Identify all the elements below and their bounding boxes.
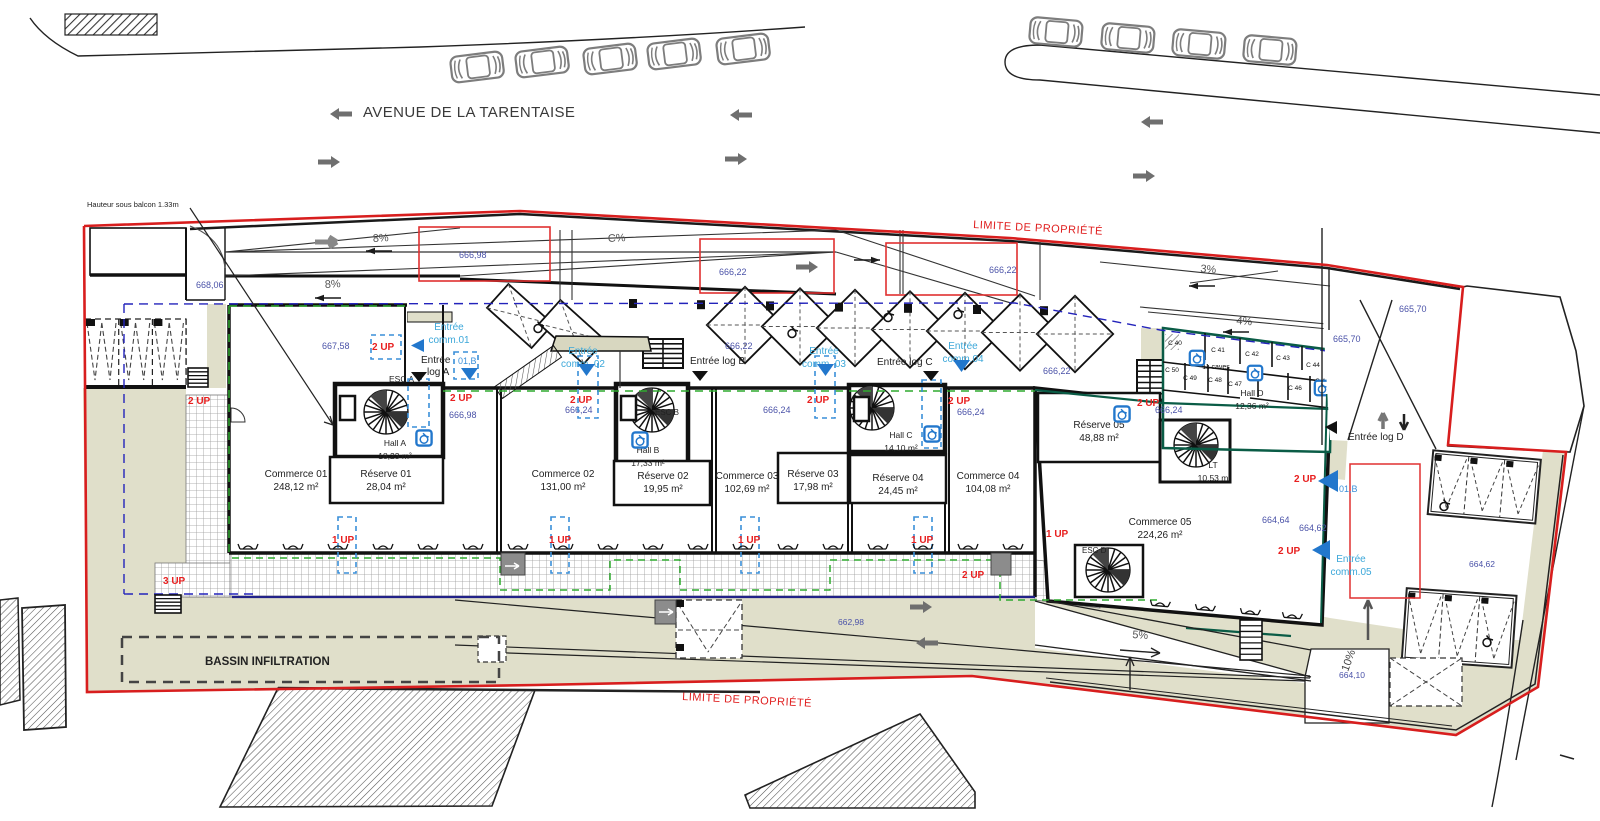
svg-text:Réserve 01: Réserve 01 — [360, 469, 412, 480]
svg-text:664,64: 664,64 — [1262, 515, 1290, 525]
svg-text:Entrée: Entrée — [809, 346, 839, 357]
svg-text:1 UP: 1 UP — [911, 535, 934, 546]
svg-text:5%: 5% — [1132, 629, 1149, 642]
svg-text:C 49: C 49 — [1183, 375, 1197, 382]
svg-text:18,23 m²: 18,23 m² — [378, 451, 412, 461]
svg-text:AVENUE DE LA TARENTAISE: AVENUE DE LA TARENTAISE — [363, 104, 575, 121]
svg-text:248,12 m²: 248,12 m² — [273, 482, 319, 493]
svg-text:C 46: C 46 — [1288, 385, 1302, 392]
svg-text:666,22: 666,22 — [719, 267, 747, 277]
svg-text:C 50: C 50 — [1165, 367, 1179, 374]
svg-text:10,53 m: 10,53 m — [1198, 473, 1229, 483]
svg-text:666,22: 666,22 — [1043, 366, 1071, 376]
svg-text:Entrée log B: Entrée log B — [690, 356, 745, 367]
svg-text:C 41: C 41 — [1211, 347, 1225, 354]
svg-text:BASSIN INFILTRATION: BASSIN INFILTRATION — [205, 656, 330, 668]
svg-text:Entrée: Entrée — [568, 346, 598, 357]
svg-text:C 47: C 47 — [1228, 381, 1242, 388]
svg-text:667,58: 667,58 — [322, 341, 350, 351]
svg-text:comm.05: comm.05 — [1330, 567, 1372, 578]
svg-text:Hall D: Hall D — [1240, 388, 1263, 398]
svg-text:1 UP: 1 UP — [1046, 529, 1069, 540]
svg-text:48,88 m²: 48,88 m² — [1079, 433, 1119, 444]
svg-text:17,33 m²: 17,33 m² — [631, 458, 665, 468]
svg-text:14,10 m²: 14,10 m² — [884, 443, 918, 453]
svg-text:Entrée: Entrée — [421, 355, 451, 366]
svg-text:C 42: C 42 — [1245, 351, 1259, 358]
svg-text:17,98 m²: 17,98 m² — [793, 482, 833, 493]
svg-text:8%: 8% — [372, 232, 389, 245]
svg-text:Réserve 03: Réserve 03 — [787, 469, 839, 480]
svg-text:Entrée: Entrée — [434, 322, 464, 333]
svg-text:log A: log A — [427, 367, 450, 378]
svg-text:Commerce 04: Commerce 04 — [957, 471, 1020, 482]
svg-text:668,06: 668,06 — [196, 280, 224, 290]
svg-text:C 43: C 43 — [1276, 355, 1290, 362]
svg-text:Entrée: Entrée — [1336, 554, 1366, 565]
svg-text:Commerce 02: Commerce 02 — [532, 469, 595, 480]
svg-text:664,62: 664,62 — [1469, 559, 1495, 569]
svg-text:1 UP: 1 UP — [738, 535, 761, 546]
svg-text:C%: C% — [607, 232, 626, 245]
svg-text:2 UP: 2 UP — [1137, 398, 1160, 409]
svg-text:28,04 m²: 28,04 m² — [366, 482, 406, 493]
svg-text:Réserve 04: Réserve 04 — [872, 473, 924, 484]
svg-text:C 44: C 44 — [1306, 362, 1320, 369]
svg-text:Hall A: Hall A — [384, 438, 407, 448]
svg-text:664,10: 664,10 — [1339, 670, 1365, 680]
svg-text:666,98: 666,98 — [459, 250, 487, 260]
svg-text:666,22: 666,22 — [725, 341, 753, 351]
svg-text:2 UP: 2 UP — [807, 395, 830, 406]
svg-text:24,45 m²: 24,45 m² — [878, 486, 918, 497]
svg-text:19,95 m²: 19,95 m² — [643, 484, 683, 495]
svg-text:102,69 m²: 102,69 m² — [724, 484, 770, 495]
svg-text:1 UP: 1 UP — [549, 535, 572, 546]
svg-text:Commerce 01: Commerce 01 — [265, 469, 328, 480]
svg-text:666,24: 666,24 — [763, 405, 791, 415]
svg-text:C 48: C 48 — [1208, 377, 1222, 384]
svg-text:2 UP: 2 UP — [570, 395, 593, 406]
svg-text:Entrée: Entrée — [948, 341, 978, 352]
svg-text:ESC B: ESC B — [655, 408, 679, 417]
svg-text:2 UP: 2 UP — [962, 570, 985, 581]
svg-text:Entrée log D: Entrée log D — [1348, 432, 1404, 443]
svg-text:2 UP: 2 UP — [188, 396, 211, 407]
svg-text:665,70: 665,70 — [1399, 304, 1427, 314]
svg-text:Hall C: Hall C — [889, 430, 912, 440]
svg-text:Hauteur sous balcon 1.33m: Hauteur sous balcon 1.33m — [87, 200, 179, 209]
svg-text:662,98: 662,98 — [838, 617, 864, 627]
svg-text:01,B: 01,B — [458, 356, 477, 366]
svg-text:Réserve 02: Réserve 02 — [637, 471, 689, 482]
svg-text:665,70: 665,70 — [1333, 334, 1361, 344]
svg-text:2 UP: 2 UP — [1294, 474, 1317, 485]
svg-text:11 caves: 11 caves — [1202, 364, 1230, 371]
svg-text:Commerce 03: Commerce 03 — [716, 471, 779, 482]
svg-text:2 UP: 2 UP — [372, 342, 395, 353]
svg-text:666,22: 666,22 — [989, 265, 1017, 275]
svg-text:LT: LT — [1208, 460, 1217, 470]
svg-text:2 UP: 2 UP — [948, 396, 971, 407]
svg-text:224,26 m²: 224,26 m² — [1137, 530, 1183, 541]
svg-text:Commerce 05: Commerce 05 — [1129, 517, 1192, 528]
svg-text:8%: 8% — [324, 278, 341, 291]
svg-text:131,00 m²: 131,00 m² — [540, 482, 586, 493]
svg-text:666,98: 666,98 — [449, 410, 477, 420]
svg-text:Entrée log C: Entrée log C — [877, 357, 933, 368]
svg-text:01,B: 01,B — [1339, 484, 1358, 494]
svg-text:664,62: 664,62 — [1299, 523, 1327, 533]
svg-text:C 40: C 40 — [1168, 340, 1182, 347]
svg-text:2 UP: 2 UP — [450, 393, 473, 404]
svg-text:2 UP: 2 UP — [1278, 546, 1301, 557]
svg-text:104,08 m²: 104,08 m² — [965, 484, 1011, 495]
svg-text:1 UP: 1 UP — [332, 535, 355, 546]
svg-text:666,24: 666,24 — [957, 407, 985, 417]
svg-text:ESC D: ESC D — [1082, 546, 1107, 555]
svg-text:12,36 m²: 12,36 m² — [1235, 401, 1269, 411]
svg-text:3 UP: 3 UP — [163, 576, 186, 587]
svg-text:comm.01: comm.01 — [428, 335, 470, 346]
